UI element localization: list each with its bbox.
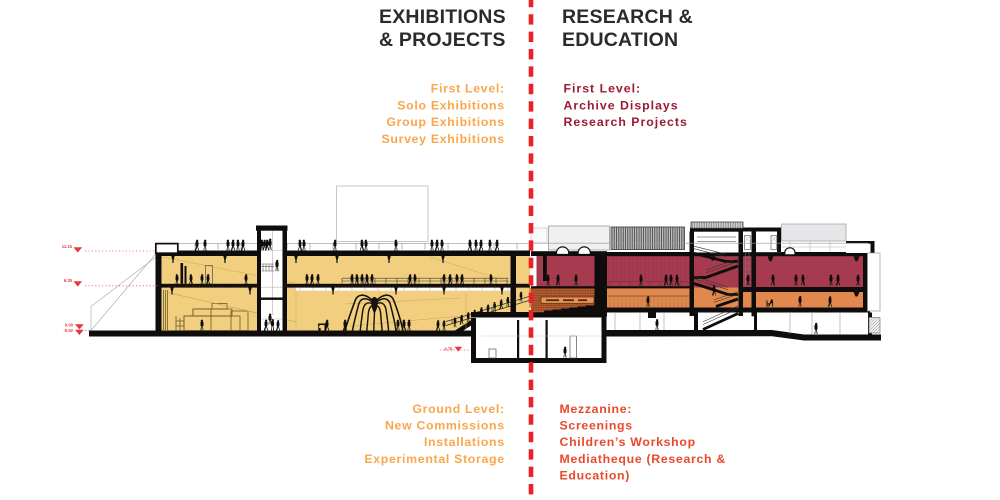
svg-text:11.15: 11.15 xyxy=(62,244,73,249)
svg-text:First Level:: First Level: xyxy=(431,82,505,96)
svg-text:Mezzanine:: Mezzanine: xyxy=(560,402,633,416)
svg-text:Research Projects: Research Projects xyxy=(564,115,688,129)
svg-text:& PROJECTS: & PROJECTS xyxy=(379,29,506,51)
svg-text:-3.75: -3.75 xyxy=(443,346,453,351)
svg-text:Screenings: Screenings xyxy=(560,419,633,433)
svg-text:Solo Exhibitions: Solo Exhibitions xyxy=(397,98,505,112)
svg-text:Survey Exhibitions: Survey Exhibitions xyxy=(381,132,504,146)
svg-text:Experimental Storage: Experimental Storage xyxy=(364,452,504,466)
svg-text:Children’s Workshop: Children’s Workshop xyxy=(560,435,696,449)
svg-text:RESEARCH &: RESEARCH & xyxy=(562,6,693,28)
svg-text:First Level:: First Level: xyxy=(564,82,642,96)
svg-text:New Commissions: New Commissions xyxy=(385,419,505,433)
svg-text:-0.52: -0.52 xyxy=(63,328,73,333)
svg-text:Group Exhibitions: Group Exhibitions xyxy=(386,115,504,129)
svg-text:Ground Level:: Ground Level: xyxy=(412,402,504,416)
svg-text:Archive Displays: Archive Displays xyxy=(564,98,679,112)
svg-text:Mediatheque (Research &: Mediatheque (Research & xyxy=(560,452,726,466)
svg-text:Education): Education) xyxy=(560,469,631,483)
svg-text:6.35: 6.35 xyxy=(64,278,73,283)
svg-text:EDUCATION: EDUCATION xyxy=(562,29,678,51)
svg-text:Installations: Installations xyxy=(424,435,505,449)
svg-text:EXHIBITIONS: EXHIBITIONS xyxy=(379,6,506,28)
